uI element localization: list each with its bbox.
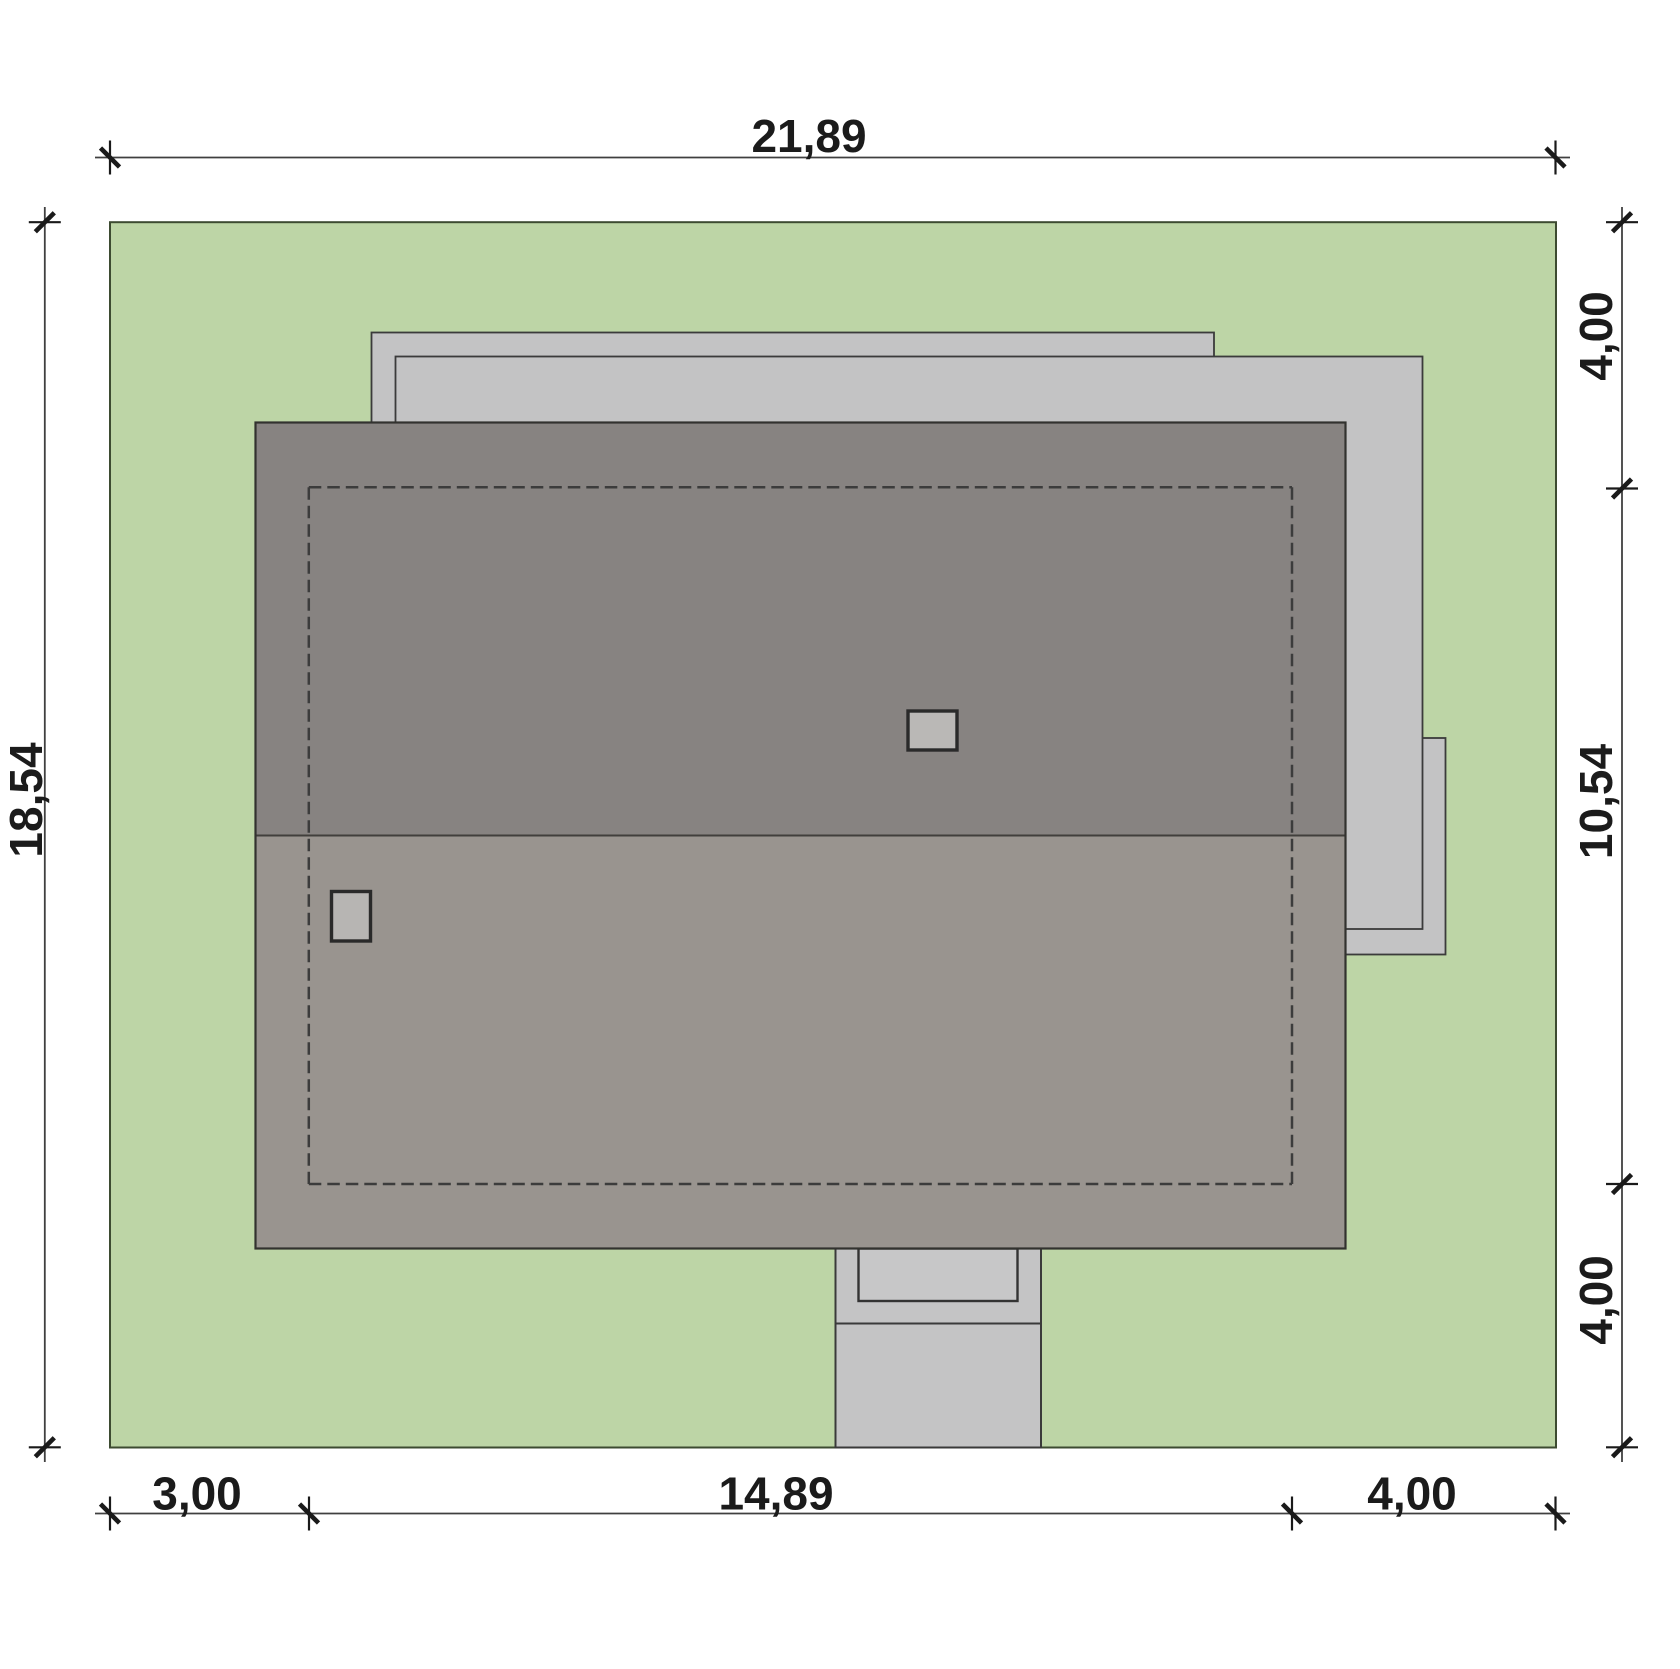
svg-text:4,00: 4,00 (1570, 1255, 1622, 1345)
svg-text:4,00: 4,00 (1367, 1468, 1457, 1520)
svg-text:3,00: 3,00 (152, 1468, 242, 1520)
svg-text:10,54: 10,54 (1570, 744, 1622, 860)
svg-text:18,54: 18,54 (0, 742, 52, 858)
svg-text:4,00: 4,00 (1570, 291, 1622, 381)
svg-text:21,89: 21,89 (751, 110, 866, 162)
svg-text:14,89: 14,89 (718, 1468, 833, 1520)
